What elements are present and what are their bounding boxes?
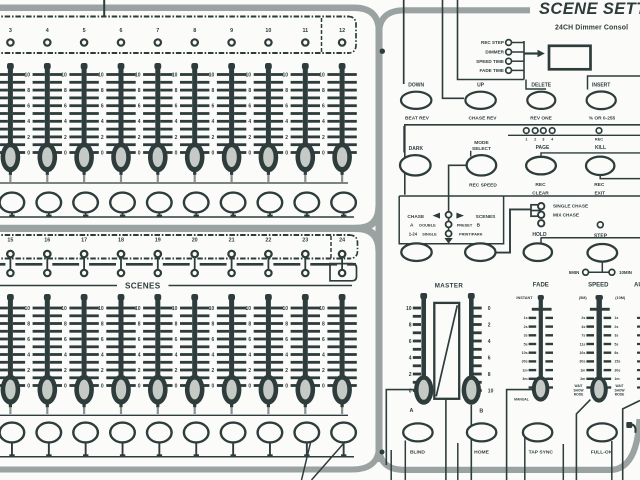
svg-text:6: 6: [212, 104, 215, 110]
svg-text:INSERT: INSERT: [592, 82, 610, 88]
svg-text:30s: 30s: [522, 360, 528, 364]
svg-text:17: 17: [81, 238, 87, 244]
svg-text:DARK: DARK: [409, 146, 424, 152]
svg-text:SCENES: SCENES: [476, 214, 497, 220]
svg-text:SINGLE: SINGLE: [422, 232, 437, 237]
svg-text:0: 0: [138, 383, 141, 389]
svg-text:6: 6: [248, 104, 251, 110]
svg-text:1s: 1s: [524, 316, 528, 320]
svg-text:4: 4: [212, 352, 215, 358]
svg-text:6: 6: [175, 104, 178, 110]
svg-text:19: 19: [155, 238, 161, 244]
svg-text:MODE: MODE: [574, 393, 584, 397]
svg-text:6: 6: [248, 337, 251, 343]
svg-text:30s: 30s: [579, 360, 585, 364]
svg-text:8: 8: [285, 88, 288, 94]
svg-text:8: 8: [248, 321, 251, 327]
svg-text:CHASE: CHASE: [407, 214, 425, 220]
svg-text:4: 4: [285, 352, 288, 358]
svg-text:15: 15: [7, 238, 13, 244]
svg-text:10: 10: [319, 72, 325, 78]
svg-text:5s: 5s: [614, 342, 618, 346]
svg-text:2: 2: [285, 135, 288, 141]
svg-text:6: 6: [120, 28, 123, 34]
svg-text:4: 4: [285, 119, 288, 125]
svg-text:4: 4: [27, 352, 30, 358]
svg-text:2: 2: [248, 368, 251, 374]
svg-text:MASTER: MASTER: [435, 282, 464, 289]
svg-text:SCENES: SCENES: [125, 281, 161, 290]
svg-text:8: 8: [101, 88, 104, 94]
svg-text:10: 10: [24, 306, 30, 312]
svg-text:10s: 10s: [522, 351, 528, 355]
svg-text:1m: 1m: [580, 368, 585, 372]
svg-text:A: A: [410, 408, 414, 414]
svg-text:6: 6: [101, 104, 104, 110]
svg-text:4s: 4s: [581, 325, 585, 329]
svg-text:16s: 16s: [579, 351, 585, 355]
svg-text:6: 6: [322, 337, 325, 343]
svg-text:8: 8: [138, 321, 141, 327]
svg-text:SPEED: SPEED: [588, 283, 609, 289]
svg-text:UP: UP: [477, 82, 485, 88]
svg-text:8: 8: [322, 88, 325, 94]
svg-text:4: 4: [488, 339, 491, 345]
svg-text:0: 0: [27, 383, 30, 389]
svg-text:4: 4: [138, 352, 141, 358]
svg-text:0: 0: [409, 389, 412, 395]
svg-text:STEP: STEP: [594, 233, 608, 239]
svg-text:6: 6: [27, 337, 30, 343]
svg-text:10: 10: [265, 28, 271, 34]
svg-text:4: 4: [101, 352, 104, 358]
svg-text:(10M): (10M): [615, 296, 626, 300]
svg-text:7: 7: [156, 28, 159, 34]
svg-text:10: 10: [61, 306, 67, 312]
svg-text:6: 6: [64, 337, 67, 343]
svg-text:10: 10: [319, 306, 325, 312]
svg-text:0: 0: [285, 150, 288, 156]
svg-text:4: 4: [175, 119, 178, 125]
svg-text:5: 5: [83, 28, 86, 34]
svg-text:2m: 2m: [580, 377, 585, 381]
svg-text:6: 6: [285, 337, 288, 343]
svg-text:PAGE: PAGE: [536, 145, 550, 151]
svg-text:10: 10: [246, 306, 252, 312]
svg-text:10: 10: [135, 72, 141, 78]
svg-text:30s: 30s: [614, 368, 620, 372]
svg-text:B: B: [479, 409, 483, 415]
svg-text:KILL: KILL: [595, 145, 606, 151]
svg-text:A: A: [410, 223, 414, 229]
svg-text:1m: 1m: [522, 368, 527, 372]
svg-text:6: 6: [322, 104, 325, 110]
svg-text:FADE: FADE: [533, 283, 549, 289]
svg-text:4: 4: [322, 352, 325, 358]
svg-text:0: 0: [212, 383, 215, 389]
svg-text:10: 10: [98, 72, 104, 78]
svg-text:0: 0: [322, 150, 325, 156]
svg-text:0: 0: [64, 150, 67, 156]
svg-text:2: 2: [27, 135, 30, 141]
svg-text:MIX CHASE: MIX CHASE: [553, 213, 579, 218]
svg-text:0: 0: [212, 150, 215, 156]
svg-text:4: 4: [138, 119, 141, 125]
svg-text:2s: 2s: [614, 325, 618, 329]
svg-text:0: 0: [322, 383, 325, 389]
svg-text:4: 4: [322, 119, 325, 125]
svg-text:8: 8: [27, 88, 30, 94]
svg-text:10: 10: [246, 72, 252, 78]
svg-text:4: 4: [64, 119, 67, 125]
svg-text:20: 20: [192, 238, 198, 244]
svg-text:2: 2: [101, 135, 104, 141]
svg-text:2: 2: [64, 368, 67, 374]
svg-text:% OR 0-255: % OR 0-255: [589, 115, 616, 121]
svg-text:2: 2: [212, 368, 215, 374]
svg-text:10MIN: 10MIN: [619, 270, 632, 275]
svg-text:0: 0: [285, 383, 288, 389]
svg-text:4: 4: [64, 352, 67, 358]
svg-text:2: 2: [322, 135, 325, 141]
svg-text:6: 6: [212, 337, 215, 343]
svg-text:MANUAL: MANUAL: [514, 398, 529, 402]
svg-text:HOME: HOME: [474, 449, 489, 455]
svg-text:8: 8: [285, 321, 288, 327]
svg-text:8: 8: [193, 28, 196, 34]
svg-text:2: 2: [322, 368, 325, 374]
svg-text:10: 10: [406, 306, 412, 312]
svg-text:FADE TIME: FADE TIME: [479, 68, 504, 73]
svg-text:10: 10: [135, 306, 141, 312]
svg-text:4: 4: [46, 28, 49, 34]
svg-text:8: 8: [409, 323, 412, 329]
svg-text:2: 2: [101, 368, 104, 374]
svg-text:10: 10: [172, 306, 178, 312]
svg-text:10: 10: [61, 72, 67, 78]
svg-text:7s: 7s: [581, 334, 585, 338]
svg-text:4: 4: [248, 352, 251, 358]
svg-text:2: 2: [175, 368, 178, 374]
svg-text:8: 8: [212, 321, 215, 327]
svg-text:SELECT: SELECT: [472, 146, 491, 152]
svg-text:DELETE: DELETE: [531, 82, 551, 88]
svg-text:8s: 8s: [614, 351, 618, 355]
svg-text:1s: 1s: [614, 316, 618, 320]
svg-text:2: 2: [138, 135, 141, 141]
svg-text:2: 2: [409, 372, 412, 378]
svg-text:REV ONE: REV ONE: [530, 115, 552, 121]
svg-text:8: 8: [64, 321, 67, 327]
svg-text:DOWN: DOWN: [408, 82, 424, 88]
svg-text:AU: AU: [634, 283, 640, 289]
svg-text:22: 22: [265, 238, 271, 244]
svg-text:11s: 11s: [580, 342, 586, 346]
svg-text:PRINT/PARK: PRINT/PARK: [459, 232, 483, 237]
svg-text:REC STEP: REC STEP: [481, 40, 504, 45]
svg-text:12: 12: [339, 28, 345, 34]
svg-text:0: 0: [138, 150, 141, 156]
svg-text:1-24: 1-24: [409, 232, 418, 237]
svg-text:4: 4: [175, 352, 178, 358]
svg-text:3: 3: [9, 28, 12, 34]
svg-text:23: 23: [302, 238, 308, 244]
svg-text:4: 4: [409, 356, 412, 362]
svg-text:10: 10: [172, 72, 178, 78]
svg-text:3m: 3m: [522, 377, 527, 381]
svg-text:10: 10: [24, 72, 30, 78]
svg-text:INSTANT: INSTANT: [516, 296, 533, 300]
svg-text:8: 8: [248, 88, 251, 94]
svg-text:REC: REC: [594, 182, 605, 188]
svg-text:FULL-ON: FULL-ON: [591, 449, 613, 455]
svg-text:2s: 2s: [524, 325, 528, 329]
svg-text:SPEED TIME: SPEED TIME: [476, 59, 504, 64]
svg-text:8: 8: [175, 321, 178, 327]
svg-text:10: 10: [282, 306, 288, 312]
svg-text:6: 6: [285, 104, 288, 110]
svg-text:8: 8: [101, 321, 104, 327]
svg-text:6: 6: [488, 356, 491, 362]
svg-text:4: 4: [212, 119, 215, 125]
svg-text:0: 0: [101, 383, 104, 389]
svg-text:SCENE SETT: SCENE SETT: [539, 0, 640, 18]
svg-text:10: 10: [209, 306, 215, 312]
svg-text:BLIND: BLIND: [410, 449, 425, 455]
svg-text:8: 8: [212, 88, 215, 94]
svg-text:2: 2: [138, 368, 141, 374]
svg-text:10: 10: [282, 72, 288, 78]
svg-text:8: 8: [175, 88, 178, 94]
svg-text:16: 16: [44, 238, 50, 244]
svg-text:6: 6: [101, 337, 104, 343]
svg-text:15s: 15s: [614, 360, 620, 364]
svg-text:0: 0: [488, 306, 491, 312]
svg-text:0: 0: [64, 383, 67, 389]
svg-text:4: 4: [248, 119, 251, 125]
svg-text:0: 0: [175, 383, 178, 389]
svg-text:6: 6: [138, 104, 141, 110]
svg-text:6: 6: [64, 104, 67, 110]
svg-text:24: 24: [339, 238, 345, 244]
svg-text:REC: REC: [595, 137, 603, 142]
svg-text:2: 2: [64, 135, 67, 141]
svg-text:8: 8: [138, 88, 141, 94]
svg-text:3s: 3s: [614, 334, 618, 338]
svg-text:2: 2: [285, 368, 288, 374]
svg-text:1m: 1m: [614, 377, 619, 381]
svg-text:4: 4: [27, 119, 30, 125]
svg-text:10: 10: [488, 389, 494, 395]
svg-text:3s: 3s: [524, 334, 528, 338]
svg-text:0: 0: [101, 150, 104, 156]
svg-text:4: 4: [101, 119, 104, 125]
svg-text:5s: 5s: [524, 342, 528, 346]
svg-text:0: 0: [175, 150, 178, 156]
svg-text:9: 9: [230, 28, 233, 34]
svg-text:SINGLE CHASE: SINGLE CHASE: [553, 204, 588, 209]
svg-text:6: 6: [409, 339, 412, 345]
svg-text:8: 8: [27, 321, 30, 327]
svg-text:8: 8: [322, 321, 325, 327]
svg-text:21: 21: [229, 238, 235, 244]
svg-text:REC SPEED: REC SPEED: [469, 182, 497, 188]
svg-text:MODE: MODE: [474, 140, 489, 146]
svg-text:8: 8: [64, 88, 67, 94]
svg-text:10: 10: [209, 72, 215, 78]
svg-text:6: 6: [175, 337, 178, 343]
svg-text:PRESET: PRESET: [457, 222, 473, 227]
svg-text:2: 2: [27, 368, 30, 374]
svg-text:DOUBLE: DOUBLE: [419, 222, 436, 227]
svg-text:DIMMER: DIMMER: [485, 50, 504, 55]
svg-text:18: 18: [118, 238, 124, 244]
svg-text:BEAT REV: BEAT REV: [405, 115, 430, 121]
svg-text:TAP SYNC: TAP SYNC: [529, 449, 554, 455]
svg-text:CHASE REV: CHASE REV: [469, 115, 498, 121]
svg-text:2: 2: [175, 135, 178, 141]
svg-text:(5M): (5M): [579, 296, 588, 300]
svg-text:10: 10: [98, 306, 104, 312]
svg-text:6: 6: [138, 337, 141, 343]
svg-text:24CH Dimmer Consol: 24CH Dimmer Consol: [555, 24, 628, 31]
svg-text:0: 0: [248, 150, 251, 156]
svg-text:MODE: MODE: [615, 393, 625, 397]
svg-text:6: 6: [27, 104, 30, 110]
svg-text:0: 0: [27, 150, 30, 156]
svg-text:2s: 2s: [581, 316, 585, 320]
svg-text:2: 2: [248, 135, 251, 141]
svg-text:0: 0: [248, 383, 251, 389]
svg-text:5MIN: 5MIN: [569, 270, 580, 275]
svg-text:B: B: [477, 223, 481, 229]
svg-text:2: 2: [488, 323, 491, 329]
svg-text:REC: REC: [535, 182, 546, 188]
svg-text:8: 8: [488, 372, 491, 378]
svg-text:2: 2: [212, 135, 215, 141]
svg-text:11: 11: [302, 28, 308, 34]
